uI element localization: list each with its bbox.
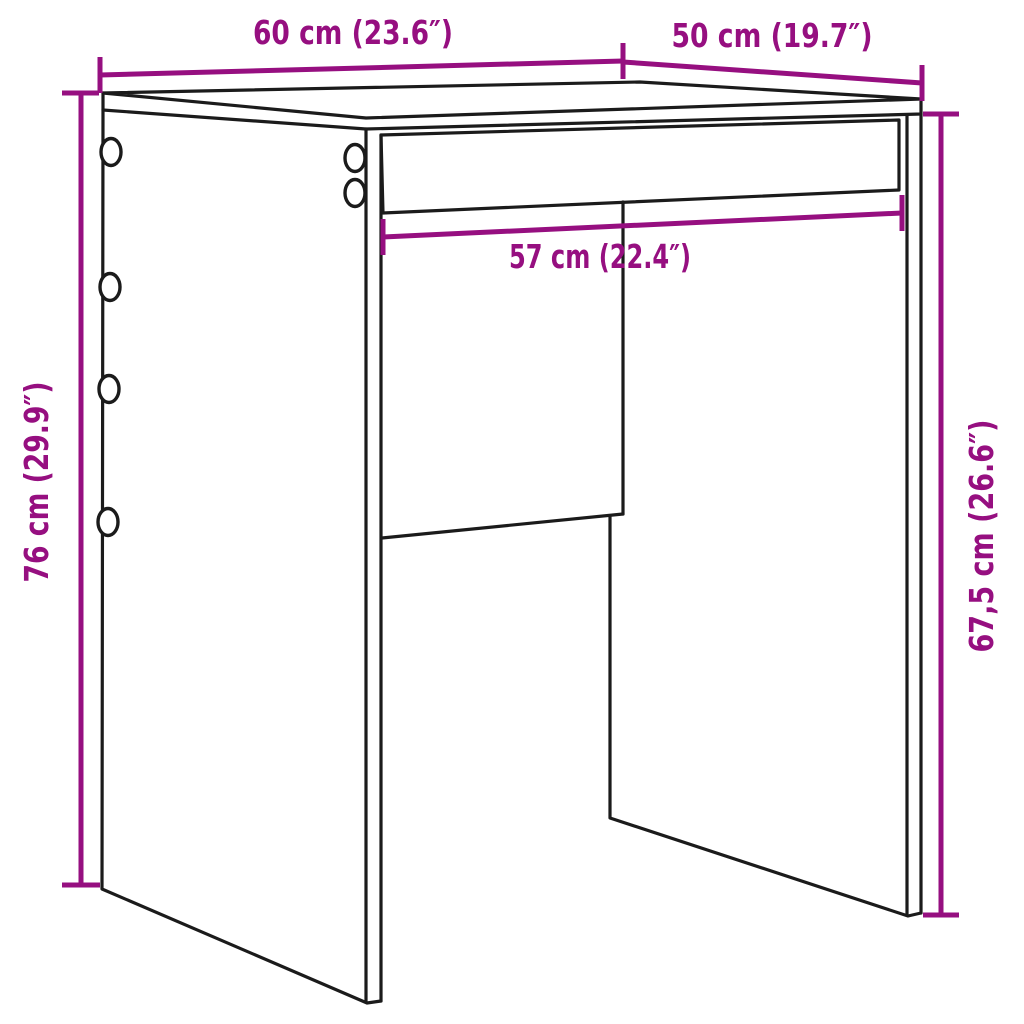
side-height-label: 67,5 cm (26.6″): [962, 420, 1001, 653]
screw-hole: [345, 180, 365, 207]
height-label: 76 cm (29.9″): [17, 382, 56, 583]
screw-holes: [98, 139, 365, 536]
apron-outline: [381, 120, 899, 213]
width-dimension-line: [100, 61, 623, 75]
depth-label: 50 cm (19.7″): [672, 16, 873, 55]
tabletop-top-face: [103, 82, 921, 118]
width-label: 60 cm (23.6″): [253, 13, 453, 52]
left-panel-outline: [102, 110, 381, 1003]
inner-width-dimension-line: [383, 213, 902, 237]
dimension-lines: [62, 43, 959, 915]
screw-hole: [99, 376, 119, 403]
screw-hole: [98, 509, 118, 536]
inner-width-label: 57 cm (22.4″): [509, 237, 691, 276]
right-panel-back-edge-and-bottom: [610, 517, 921, 916]
depth-dimension-line: [623, 62, 922, 83]
screw-hole: [100, 274, 120, 301]
diagram-canvas: 60 cm (23.6″) 50 cm (19.7″) 57 cm (22.4″…: [0, 0, 1024, 1024]
back-panel-bottom-edge: [382, 514, 623, 538]
furniture-dimension-diagram: 60 cm (23.6″) 50 cm (19.7″) 57 cm (22.4″…: [0, 0, 1024, 1024]
screw-hole: [345, 145, 365, 172]
screw-hole: [101, 139, 121, 166]
